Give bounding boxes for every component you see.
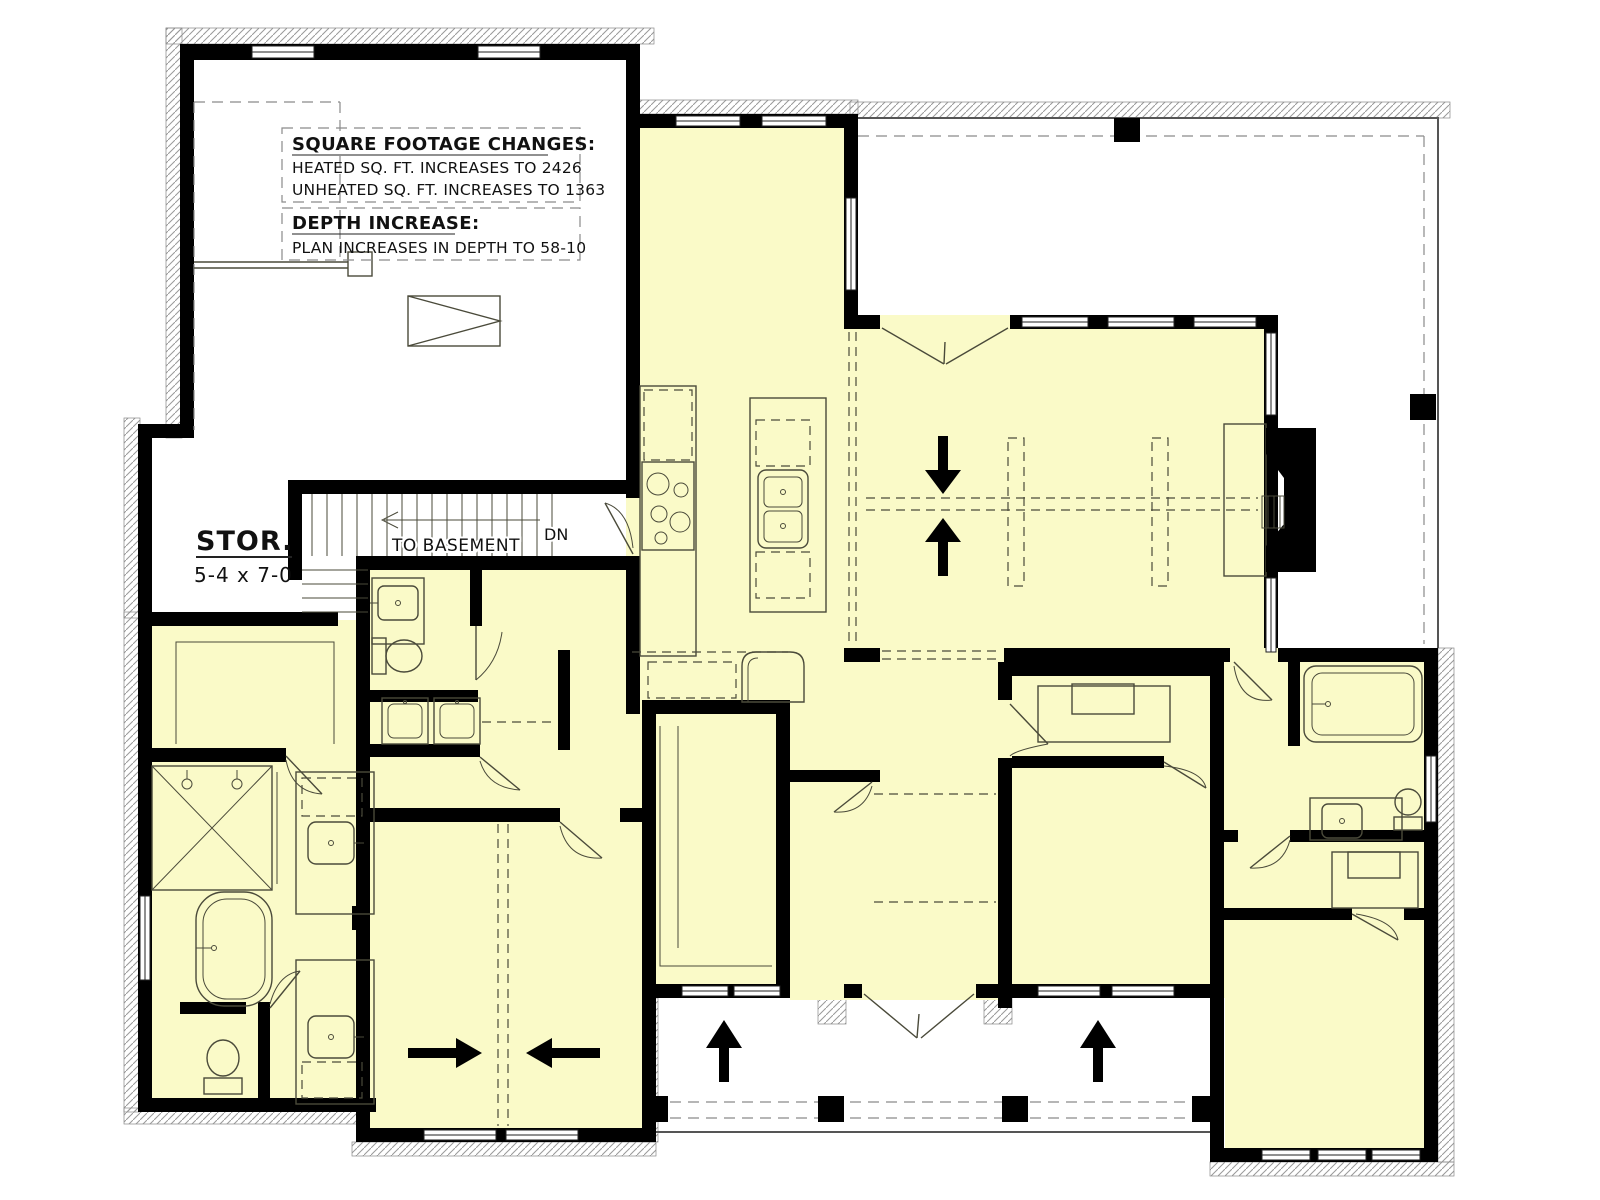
window: [762, 116, 826, 126]
stair-direction-label: TO BASEMENT: [391, 536, 520, 556]
window: [676, 116, 740, 126]
window: [1262, 1150, 1310, 1160]
stair-down-label: DN: [544, 525, 568, 544]
window: [734, 986, 780, 996]
room-scullery: [645, 715, 790, 990]
window: [478, 46, 540, 58]
deck-post: [1410, 394, 1436, 420]
entry-double-door-icon: [864, 994, 974, 1038]
arrow-up-icon: [1080, 1020, 1116, 1082]
note-sqft-title: SQUARE FOOTAGE CHANGES:: [292, 134, 595, 155]
note-depth-increase: DEPTH INCREASE: PLAN INCREASES IN DEPTH …: [282, 208, 586, 260]
arrow-up-icon: [706, 1020, 742, 1082]
arrow-left-open-icon: [382, 512, 540, 528]
attic-access-icon: [408, 296, 500, 346]
room-great-room: [858, 318, 1278, 658]
room-right-wing: [1225, 655, 1435, 1155]
garage-area: SQUARE FOOTAGE CHANGES: HEATED SQ. FT. I…: [194, 102, 605, 430]
deck-post: [1114, 118, 1140, 142]
front-porch: [648, 1020, 1224, 1132]
storage-label: STOR.: [196, 526, 293, 557]
window: [846, 198, 856, 290]
window: [1372, 1150, 1420, 1160]
window: [1108, 317, 1174, 327]
window: [682, 986, 728, 996]
room-master-bedroom: [356, 820, 656, 1142]
room-bedroom-2: [1005, 662, 1230, 998]
window: [1112, 986, 1174, 996]
heated-rooms: [150, 128, 1435, 1155]
porch-post: [818, 1096, 844, 1122]
note-sqft-unheated: UNHEATED SQ. FT. INCREASES TO 1363: [292, 181, 605, 199]
window: [252, 46, 314, 58]
note-square-footage: SQUARE FOOTAGE CHANGES: HEATED SQ. FT. I…: [282, 128, 605, 202]
note-sqft-heated: HEATED SQ. FT. INCREASES TO 2426: [292, 159, 582, 177]
note-depth-title: DEPTH INCREASE:: [292, 213, 480, 234]
window: [1038, 986, 1100, 996]
window: [424, 1130, 496, 1140]
window: [1426, 756, 1436, 822]
window: [1022, 317, 1088, 327]
porch-post: [1002, 1096, 1028, 1122]
window: [140, 896, 150, 980]
storage-room: STOR. 5-4 x 7-0: [194, 526, 293, 587]
window: [1266, 333, 1276, 415]
room-kitchen-dining: [640, 128, 845, 658]
window: [1194, 317, 1256, 327]
window: [1266, 578, 1276, 652]
room-master-bath: [150, 620, 365, 1110]
window: [506, 1130, 578, 1140]
note-depth-line: PLAN INCREASES IN DEPTH TO 58-10: [292, 239, 586, 257]
room-foyer-hall: [790, 655, 1010, 1000]
floor-plan: SQUARE FOOTAGE CHANGES: HEATED SQ. FT. I…: [0, 0, 1600, 1200]
window: [1318, 1150, 1366, 1160]
storage-dimension: 5-4 x 7-0: [194, 563, 293, 587]
